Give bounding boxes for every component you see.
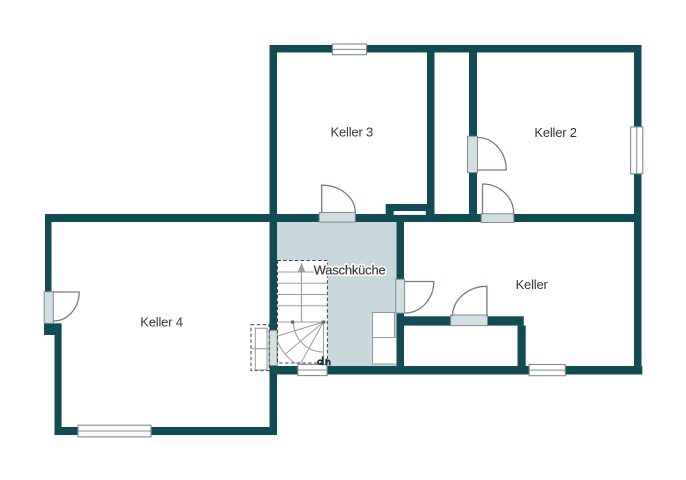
svg-text:Keller: Keller <box>516 277 549 292</box>
svg-text:Keller 3: Keller 3 <box>331 124 373 139</box>
svg-text:Keller 2: Keller 2 <box>534 125 576 140</box>
svg-text:Keller 4: Keller 4 <box>140 315 182 330</box>
svg-text:Waschküche: Waschküche <box>314 263 386 278</box>
